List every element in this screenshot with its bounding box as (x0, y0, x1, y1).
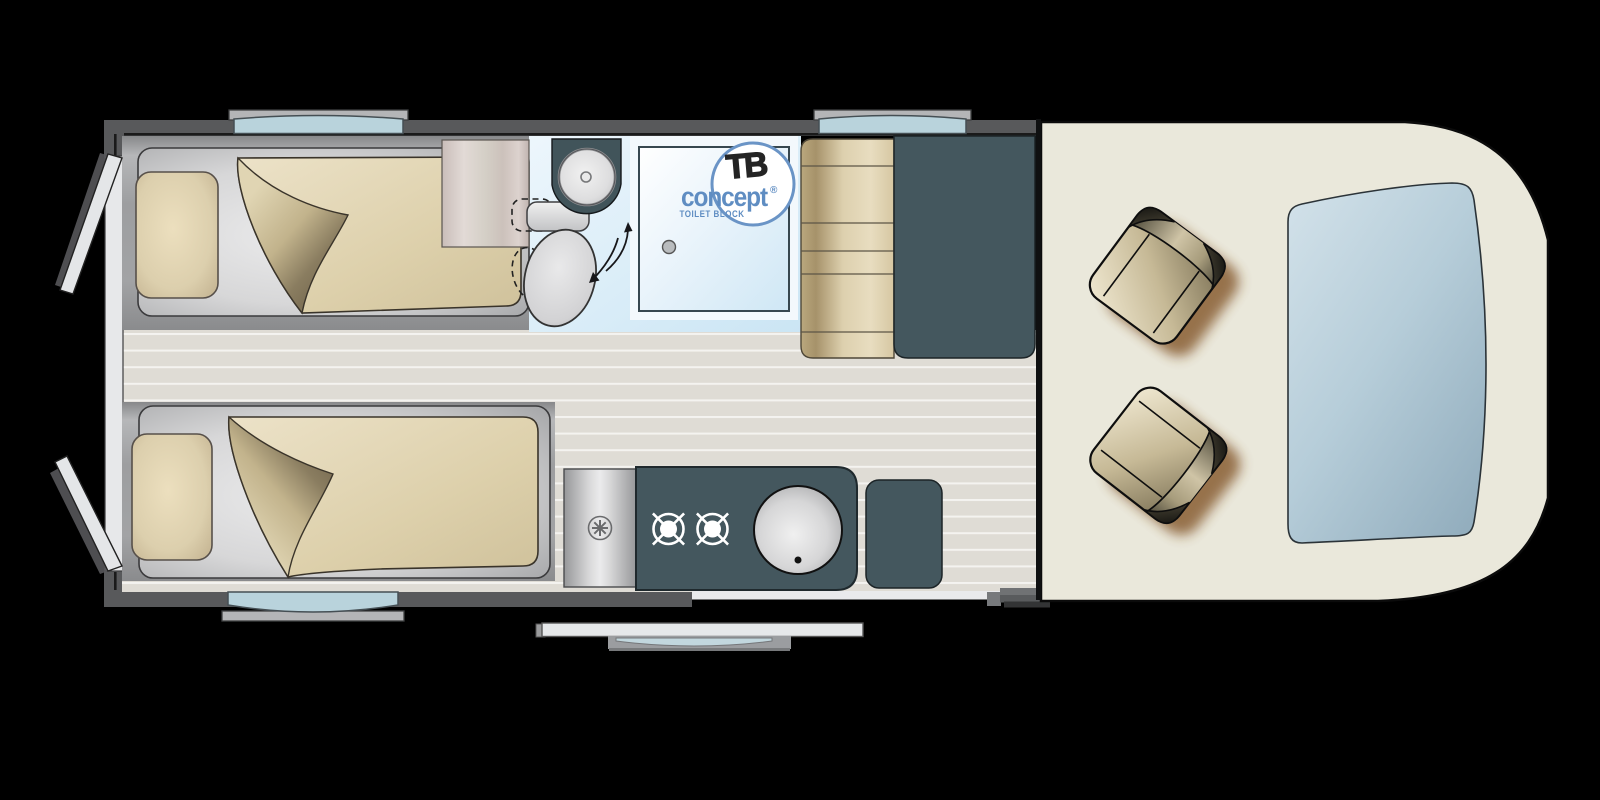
svg-text:concept: concept (681, 182, 768, 212)
svg-text:TOILET BLOCK: TOILET BLOCK (680, 209, 745, 220)
svg-text:TB: TB (725, 145, 770, 186)
svg-text:®: ® (770, 185, 778, 196)
